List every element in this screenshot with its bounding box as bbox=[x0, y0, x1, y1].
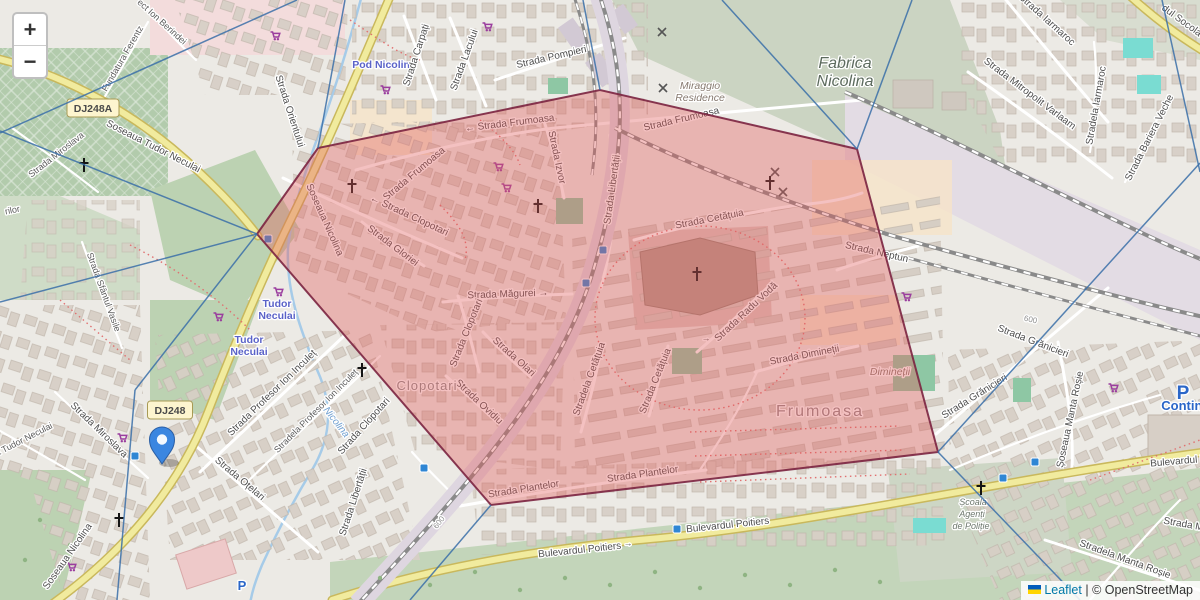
bus-stop-icon bbox=[1031, 458, 1039, 466]
zoom-out-button[interactable]: − bbox=[14, 46, 46, 77]
marker-pin-hole bbox=[157, 434, 167, 444]
bus-stop-icon bbox=[673, 525, 681, 533]
leaflet-link[interactable]: Leaflet bbox=[1044, 583, 1082, 597]
bus-stop-icon bbox=[420, 464, 428, 472]
svg-text:DJ248A: DJ248A bbox=[74, 103, 113, 115]
parking-icon: P bbox=[238, 578, 247, 593]
zoom-in-button[interactable]: + bbox=[14, 14, 46, 46]
transit-stop-label: Tudor bbox=[263, 298, 292, 310]
attribution-separator: | bbox=[1082, 583, 1092, 597]
osm-copyright: © OpenStreetMap bbox=[1092, 583, 1193, 597]
map-canvas[interactable]: DJ248ADJ248 Soseaua Tudor NeculaiFundatu… bbox=[0, 0, 1200, 600]
transit-stop-label: Neculai bbox=[230, 346, 267, 358]
street-label: → bbox=[624, 538, 633, 548]
attribution-bar: Leaflet | © OpenStreetMap bbox=[1021, 581, 1200, 600]
map-container: DJ248ADJ248 Soseaua Tudor NeculaiFundatu… bbox=[0, 0, 1200, 600]
svg-text:DJ248: DJ248 bbox=[155, 405, 186, 417]
transit-stop-label: Neculai bbox=[258, 310, 295, 322]
road-ref-shield: DJ248A bbox=[67, 99, 119, 117]
bus-stop-icon bbox=[131, 452, 139, 460]
industrial-area-label: Nicolina bbox=[817, 73, 874, 90]
residence-label: Miraggio bbox=[680, 80, 720, 92]
residence-label: Residence bbox=[675, 92, 725, 104]
school-label: Agenți bbox=[958, 509, 986, 519]
bus-stop-icon bbox=[999, 474, 1007, 482]
road-ref-shield: DJ248 bbox=[148, 401, 193, 419]
ukraine-flag-icon bbox=[1028, 585, 1041, 594]
parking-icon: P bbox=[1177, 383, 1190, 404]
school-label: de Poliție bbox=[952, 521, 989, 531]
industrial-area-label: Fabrica bbox=[818, 55, 871, 72]
zoom-control: + − bbox=[12, 12, 48, 79]
transit-stop-label: Tudor bbox=[235, 334, 264, 346]
